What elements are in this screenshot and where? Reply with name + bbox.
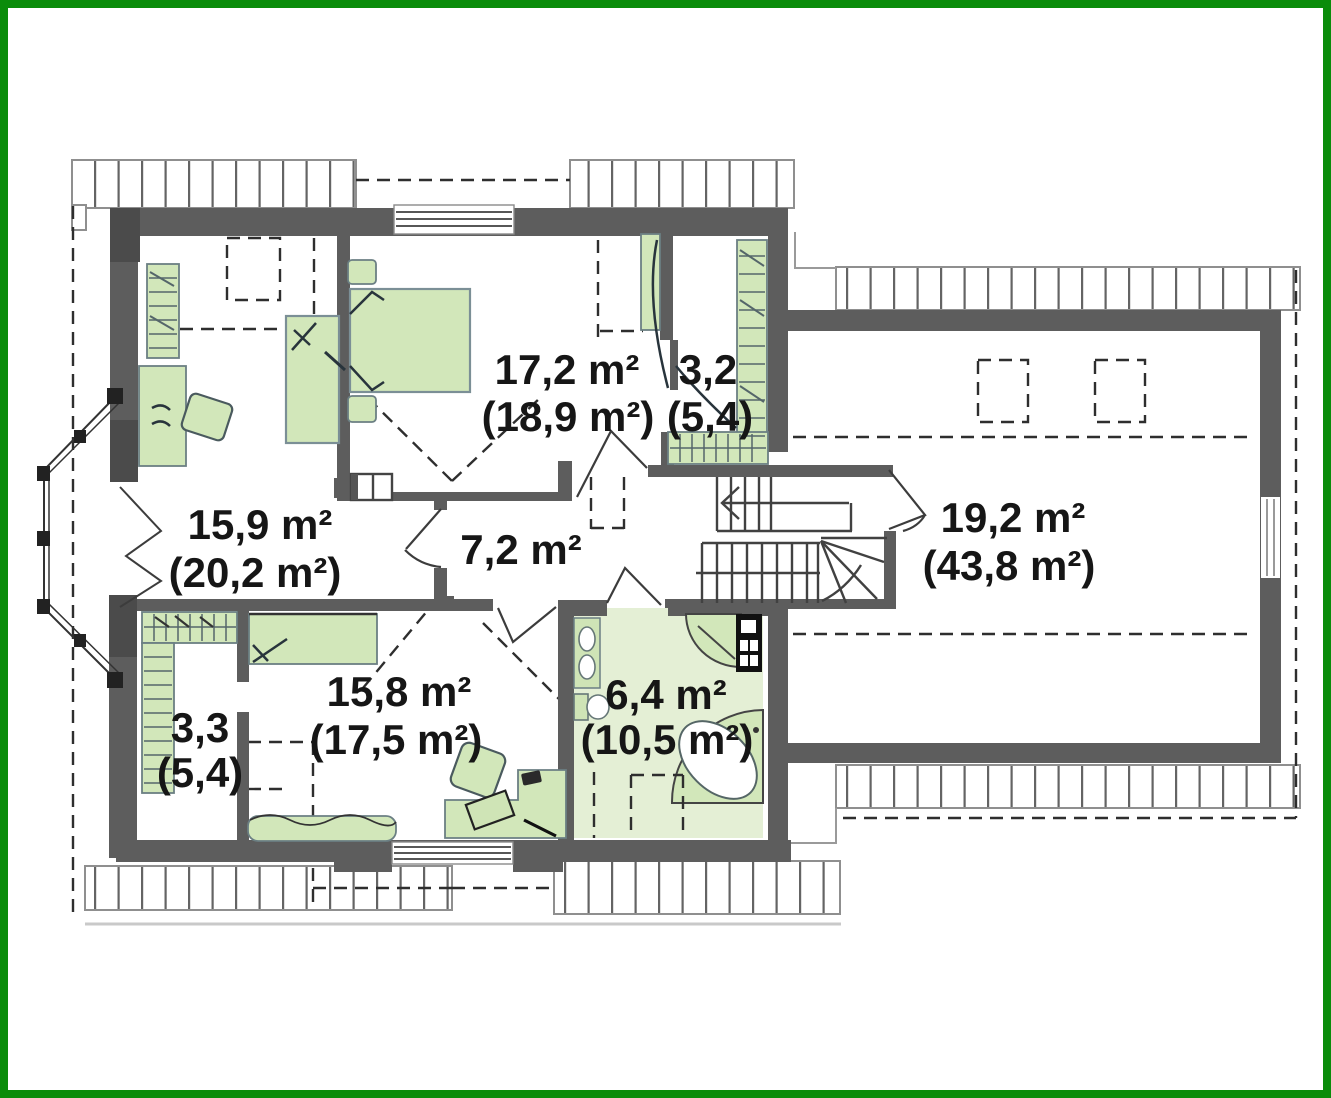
svg-text:(5,4): (5,4) [157, 749, 243, 796]
svg-text:17,2 m²: 17,2 m² [495, 346, 640, 393]
svg-text:(17,5 m²): (17,5 m²) [310, 716, 483, 763]
svg-text:(20,2 m²): (20,2 m²) [169, 549, 342, 596]
svg-text:3,3: 3,3 [171, 704, 229, 751]
svg-text:15,8 m²: 15,8 m² [327, 668, 472, 715]
svg-text:(5,4): (5,4) [667, 393, 753, 440]
svg-text:19,2 m²: 19,2 m² [941, 494, 1086, 541]
svg-text:(10,5 m²): (10,5 m²) [581, 716, 754, 763]
svg-text:(43,8 m²): (43,8 m²) [923, 542, 1096, 589]
svg-text:3,2: 3,2 [679, 346, 737, 393]
svg-text:(18,9 m²): (18,9 m²) [482, 393, 655, 440]
svg-text:6,4 m²: 6,4 m² [605, 671, 726, 718]
svg-text:15,9 m²: 15,9 m² [188, 501, 333, 548]
svg-text:7,2 m²: 7,2 m² [460, 526, 581, 573]
